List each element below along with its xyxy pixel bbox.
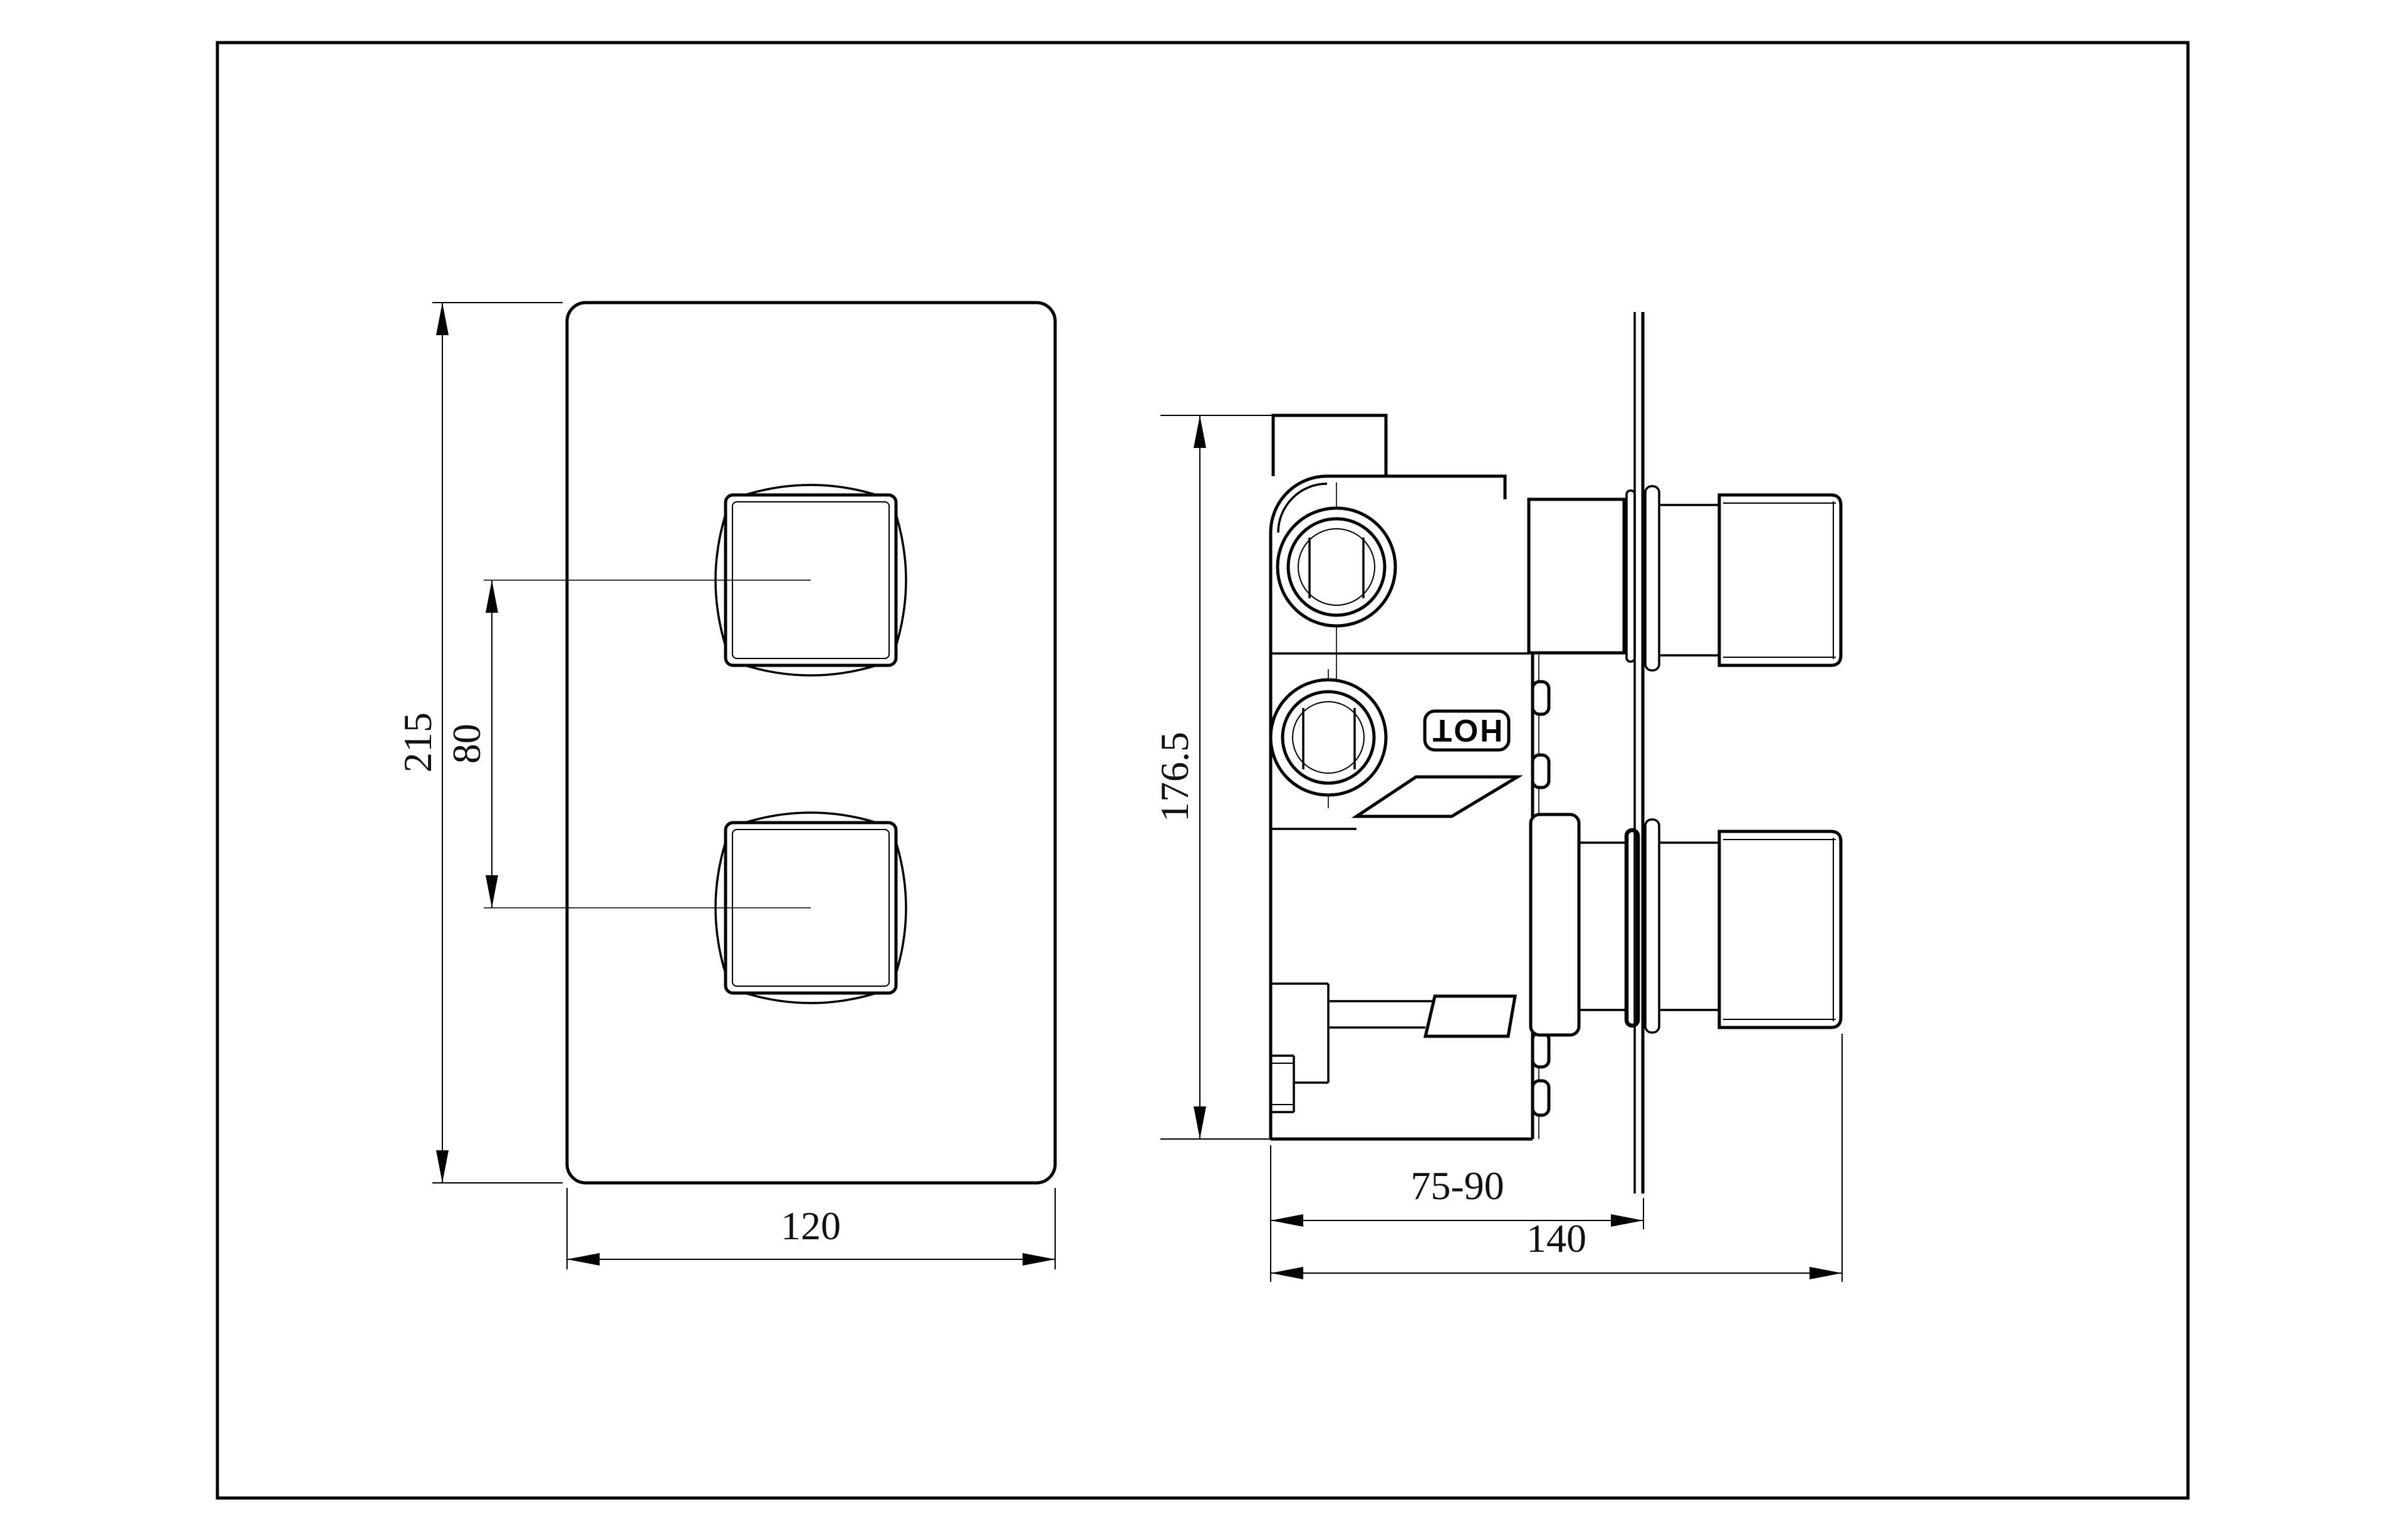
dim-label-75-90: 75-90 [1410, 1163, 1504, 1208]
top-band-edge [1327, 476, 1505, 499]
knob-side-profile [1719, 831, 1841, 1028]
sheet-border [217, 43, 2188, 1498]
trim-ring [1627, 491, 1635, 662]
arrow-right-icon [1611, 1214, 1643, 1227]
dim-label-140: 140 [1526, 1216, 1586, 1261]
cartridge-housing [1531, 814, 1579, 1035]
arrow-up-icon [486, 580, 498, 613]
rib-tab [1533, 1033, 1549, 1067]
upper-cartridge-assembly [1529, 486, 1841, 670]
arrow-down-icon [1194, 1106, 1206, 1139]
arrow-right-icon [1810, 1267, 1842, 1279]
arrow-down-icon [436, 1150, 449, 1183]
side-view: HOT [1152, 312, 1842, 1282]
arrow-up-icon [1194, 415, 1206, 448]
technical-drawing-svg: 215 80 120 [0, 0, 2406, 1540]
gland-parallelogram-lower [1425, 996, 1515, 1036]
hot-port [1271, 669, 1386, 808]
arrow-down-icon [486, 875, 498, 908]
drawing-sheet: 215 80 120 [0, 0, 2406, 1540]
cartridge-housing [1529, 499, 1624, 653]
dim-label-80: 80 [444, 724, 489, 764]
dim-label-215: 215 [395, 712, 440, 773]
escutcheon-flange [1645, 486, 1659, 670]
arrow-left-icon [567, 1253, 600, 1266]
knob-side-profile [1719, 495, 1841, 665]
arrow-left-icon [1271, 1267, 1303, 1279]
rib-tab [1533, 1081, 1549, 1115]
hot-label: HOT [1425, 711, 1509, 750]
lower-cartridge-assembly [1531, 814, 1841, 1035]
port-ring-outer [1278, 508, 1395, 626]
trim-ring [1627, 830, 1638, 1026]
hot-label-text: HOT [1431, 713, 1503, 748]
arrow-left-icon [1271, 1214, 1303, 1227]
arrow-right-icon [1023, 1253, 1055, 1266]
escutcheon-flange [1645, 819, 1659, 1033]
rib-tab [1533, 682, 1549, 714]
dim-knob-spacing: 80 [444, 580, 498, 908]
front-view: 215 80 120 [395, 303, 1055, 1269]
arrow-up-icon [436, 303, 449, 335]
bottom-pipe-stub [1271, 1056, 1294, 1112]
dim-wall-depth: 75-90 [1271, 1145, 1643, 1282]
top-neck [1273, 415, 1386, 476]
gland-parallelogram-upper [1357, 777, 1518, 816]
dim-label-120: 120 [781, 1204, 841, 1248]
dim-label-176-5: 176.5 [1152, 732, 1197, 822]
dim-plate-width: 120 [567, 1188, 1055, 1269]
front-plate [567, 303, 1055, 1183]
dim-total-depth: 140 [1271, 1034, 1842, 1282]
rib-tab [1533, 755, 1549, 788]
dim-body-height: 176.5 [1152, 415, 1273, 1139]
port-ring-outer [1271, 680, 1386, 795]
